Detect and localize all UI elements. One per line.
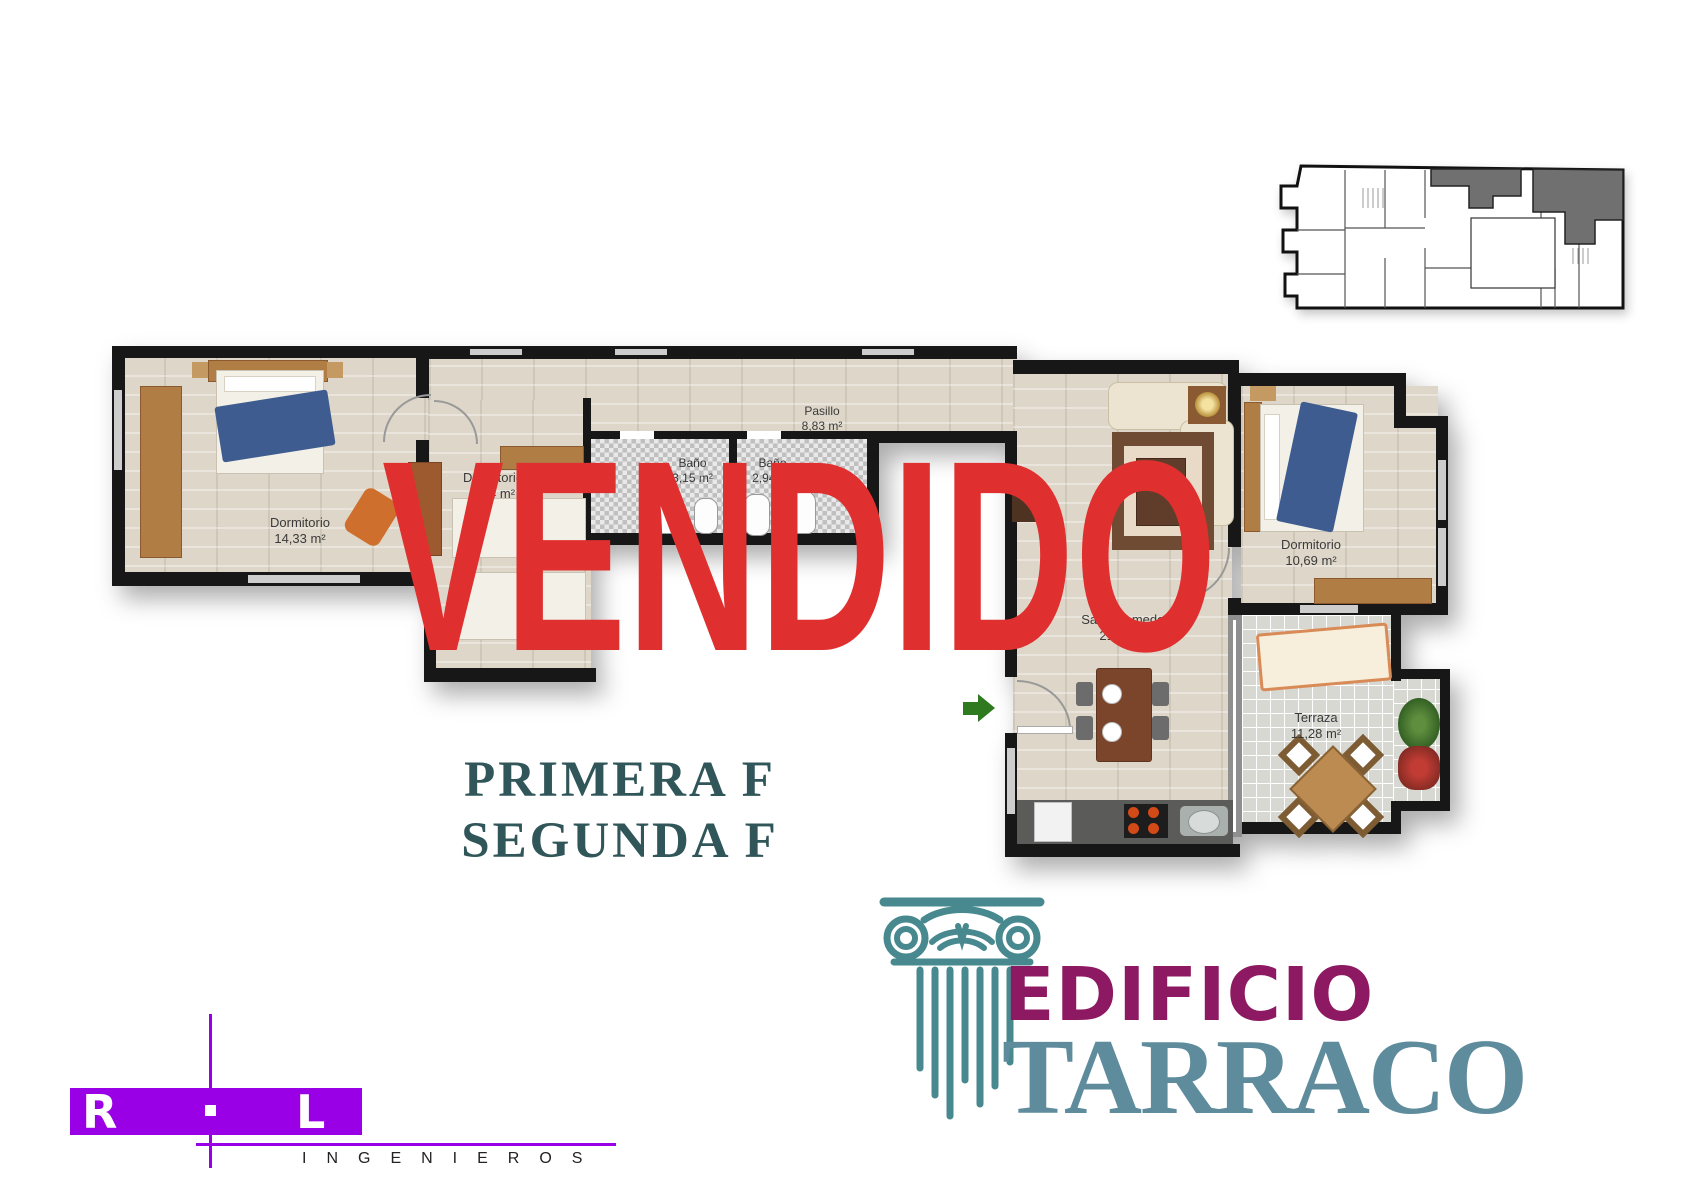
room-area: 11,28 m²	[1256, 726, 1376, 742]
flyer-page: { "stamp": { "text": "VENDIDO", "color":…	[0, 0, 1684, 1190]
entrance-arrow	[963, 702, 978, 715]
entrance-arrow-head	[978, 694, 995, 722]
logo-letter-r: R	[82, 1089, 117, 1135]
room-label-dormitorio1: Dormitorio 14,33 m²	[245, 515, 355, 547]
logo-hline	[196, 1143, 616, 1146]
brand-word-tarraco: TARRACO	[1002, 1016, 1526, 1140]
room-name: Pasillo	[767, 404, 877, 419]
floor-name: PRIMERA F SEGUNDA F	[420, 750, 820, 872]
room-name: Dormitorio	[1251, 537, 1371, 553]
floor-name-line1: PRIMERA F	[420, 750, 820, 811]
sold-stamp-text: VENDIDO	[382, 428, 1217, 676]
door-leaf	[1017, 726, 1073, 734]
room-name: Dormitorio	[245, 515, 355, 531]
room-area: 10,69 m²	[1251, 553, 1371, 569]
room-label-dormitorio3: Dormitorio 10,69 m²	[1251, 537, 1371, 569]
door-swing	[1017, 680, 1071, 730]
logo-letter-l: L	[296, 1089, 325, 1135]
room-area: 14,33 m²	[245, 531, 355, 547]
sold-stamp: VENDIDO	[378, 428, 1243, 676]
floor-name-line2: SEGUNDA F	[420, 811, 820, 872]
firm-subtitle: INGENIEROS	[302, 1150, 602, 1168]
room-label-terraza: Terraza 11,28 m²	[1256, 710, 1376, 742]
room-name: Terraza	[1256, 710, 1376, 726]
logo-center-square	[205, 1105, 216, 1116]
